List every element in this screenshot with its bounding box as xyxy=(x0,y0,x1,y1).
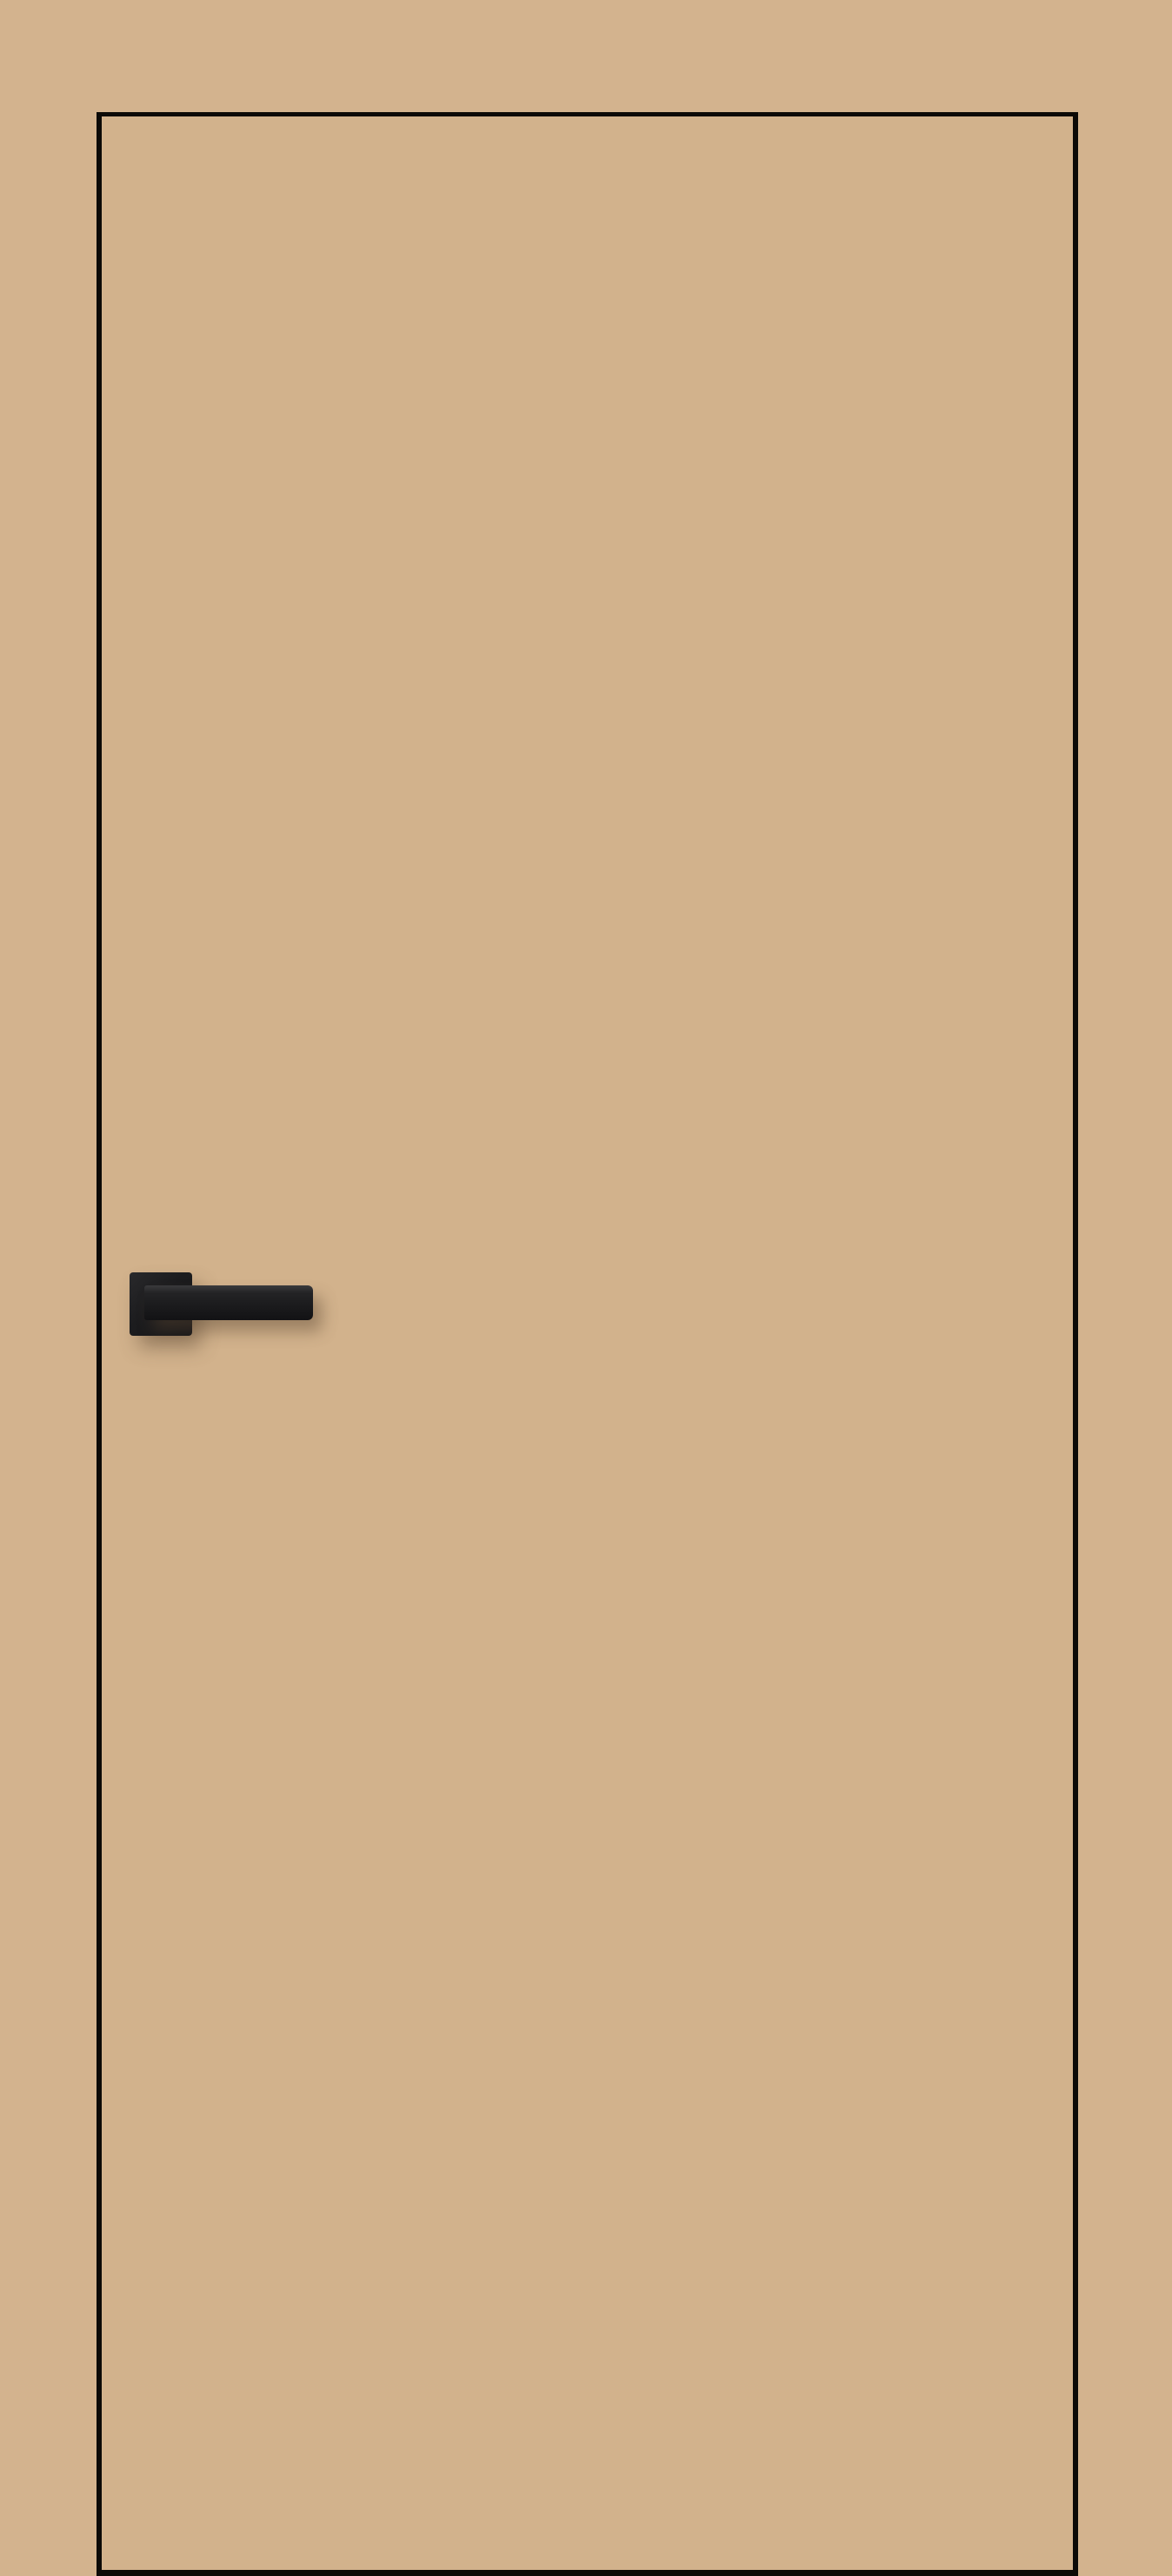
door-handle-lever xyxy=(144,1285,313,1320)
door-product-photo xyxy=(0,0,1172,2576)
door-panel xyxy=(97,112,1078,2576)
